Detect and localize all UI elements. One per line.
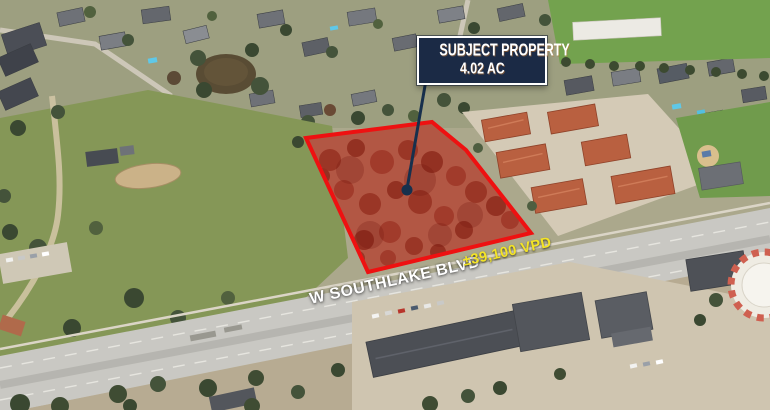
aerial-photo <box>0 0 770 410</box>
callout-acreage: 4.02 AC <box>460 60 505 78</box>
aerial-site-map: SUBJECT PROPERTY 4.02 AC W SOUTHLAKE BLV… <box>0 0 770 410</box>
property-pin-dot <box>402 185 413 196</box>
subject-property-callout: SUBJECT PROPERTY 4.02 AC <box>417 36 547 85</box>
callout-title: SUBJECT PROPERTY <box>439 40 569 61</box>
